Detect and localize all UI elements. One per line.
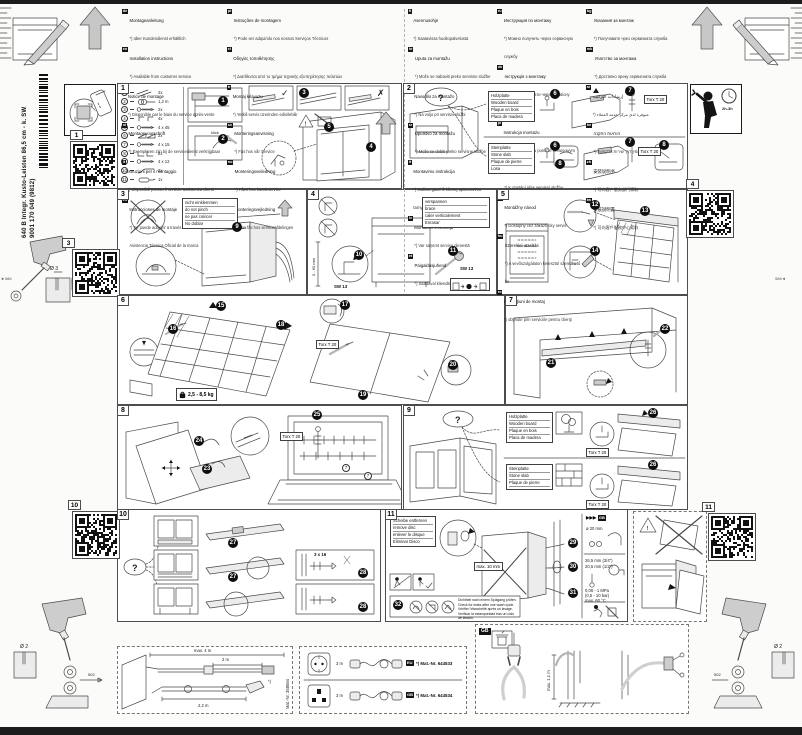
language-entry: ptInstruções de montagem*) Pode ser adqu… xyxy=(227,9,399,45)
language-title: Installation instructions xyxy=(130,56,173,61)
language-entry: itIstruzioni per il montaggio*) Disponib… xyxy=(122,160,224,196)
model-info: 640 B Integr. Kusto-Leisten 86,5 cm - k.… xyxy=(22,66,48,238)
step-badge: 2 xyxy=(218,134,228,144)
step-badge: 3 xyxy=(299,88,309,98)
step-badge: 28 xyxy=(358,568,368,578)
language-note: *) Kan fås hos serviceafdelingen xyxy=(235,225,294,230)
language-entry: mkУпатство за монтажа*) Достапно преку с… xyxy=(586,47,686,83)
language-entry: skMontážny návod*) Dostupný cez zákazníc… xyxy=(497,196,583,232)
step-badge: 18 xyxy=(276,320,286,330)
language-title: Montážny návod xyxy=(504,205,536,210)
hose-total-length: max. 4 m xyxy=(194,648,211,653)
language-note: *) Получавате чрез сервизната служба xyxy=(594,36,668,41)
svg-text:Ø 2: Ø 2 xyxy=(20,644,28,650)
language-title: Указания за монтаж xyxy=(594,18,634,23)
language-note: *) Može se nabaviti preko servisne služb… xyxy=(415,74,491,79)
step-badge: 21 xyxy=(546,358,556,368)
panel10-illustration: ? xyxy=(118,510,380,621)
language-note: *) Dostupný cez zákaznícky servis xyxy=(504,223,566,228)
language-note: *) 可向客戶服務中心索取 xyxy=(593,225,638,230)
language-title: Navodilo za montažo xyxy=(414,94,454,99)
step-panel-8: 8 24 23 25 Torx T 20 7 7 xyxy=(117,405,402,510)
step-badge: 30 xyxy=(568,562,578,572)
hose-low-length: 2,2 m xyxy=(198,703,208,708)
language-note: *) Достапно преку сервисната служба xyxy=(595,74,667,79)
step-badge: 29 xyxy=(568,538,578,548)
language-entry: slNavodilo za montažo*) Na voljo pri ser… xyxy=(408,85,492,121)
panel-number-2: 2 xyxy=(403,83,415,94)
torx-label: Torx T 20 xyxy=(586,500,609,509)
language-note: *) Na voljo pri servisni službi xyxy=(414,112,465,117)
qr-step-label-3: 3 xyxy=(62,238,75,248)
fitting-label: 26,5 mm (3/4") xyxy=(585,558,613,563)
step-badge: 17 xyxy=(340,300,350,310)
qr-code-10 xyxy=(72,511,120,559)
hose-kit-mat-nr: Mat.-Nr. 358584 xyxy=(285,679,290,709)
weight-icon xyxy=(179,390,186,399)
language-title: Instruções de montagem xyxy=(234,18,281,23)
language-code-badge: lv xyxy=(408,216,413,221)
language-entry: svMonteringsanvisning*) Fås hos vår Serv… xyxy=(227,122,399,158)
language-title: Istruzioni per il montaggio xyxy=(127,169,176,174)
language-code-badge: de xyxy=(122,9,128,14)
language-note: *) Fåes hos kundeservice xyxy=(235,187,281,192)
wood-label-box: HolzplatteWooden boardPlaque en boisPlac… xyxy=(506,412,553,443)
language-entry: tw安裝說明書*) 可向客戶服務中心索取 xyxy=(586,198,686,234)
step-panel-11: 11 Scheibe entfern xyxy=(385,509,628,622)
barcode xyxy=(39,72,48,168)
language-title: Paigaldusjuhend xyxy=(414,263,446,268)
language-column: bgУказания за монтаж*) Получавате чрез с… xyxy=(586,9,686,236)
language-title: Montagevoorschrift xyxy=(128,131,165,136)
step-badge: 5 xyxy=(324,122,334,132)
language-entry: fiAsennusohje*) Saatavissa huoltopalvelu… xyxy=(408,9,492,45)
language-code-badge: ro xyxy=(497,290,502,295)
language-entry: ruИнструкция по монтажу*) Можно получить… xyxy=(497,9,583,63)
language-title: Monteringsvejledning xyxy=(235,207,276,212)
step-badge: 13 xyxy=(640,206,650,216)
step-badge: 26 xyxy=(648,408,658,418)
step-badge: 12 xyxy=(590,200,600,210)
step-badge: 8 xyxy=(555,159,565,169)
language-entry: daMonteringsvejledning*) Kan fås hos ser… xyxy=(227,198,399,234)
step-badge: 7 xyxy=(625,137,635,147)
torx-label: Torx T 20 xyxy=(280,432,303,441)
bottom-trim-bar xyxy=(0,727,802,735)
language-note: *) Fås hos vår Service xyxy=(234,149,274,154)
leak-check-note: Dichtheit nach einem Spülgang prüfen.Che… xyxy=(458,598,518,621)
qr-step-label-11: 11 xyxy=(702,502,715,512)
panel-number-8: 8 xyxy=(117,405,129,416)
language-code-badge: sv xyxy=(227,123,233,128)
step-badge: 1 xyxy=(218,96,228,106)
language-entry: arإرشادات التركيب*) متوفرة لدى مركز خدمة… xyxy=(586,85,686,121)
language-note: *) متوفرة لدى مركز خدمة العملاء xyxy=(593,112,649,117)
language-entry: deMontageanleitung*) über Kundendienst e… xyxy=(122,9,224,45)
svg-text:Ø 2: Ø 2 xyxy=(774,644,782,650)
footnote-star: *) xyxy=(268,679,271,684)
step-badge: 22 xyxy=(660,324,670,334)
stone-label-box: SteinplatteStone slabPlaque de pierre xyxy=(506,464,553,490)
step-badge: 20 xyxy=(448,360,458,370)
language-entry: huSzerelési utasítás*) A vevőszolgálaton… xyxy=(497,234,583,288)
cord-illustration xyxy=(300,647,466,713)
language-code-badge: fi xyxy=(408,9,412,14)
pencil-marking-icon xyxy=(10,8,74,66)
sequence-pictogram xyxy=(450,278,490,291)
language-code-badge: hr xyxy=(408,47,413,52)
language-code-badge: zh xyxy=(586,160,592,165)
panel-number-1: 1 xyxy=(117,83,129,94)
brace-label-box: verspannenbracecaler verticalementEnrasa… xyxy=(422,197,490,228)
svg-text:?: ? xyxy=(455,415,461,425)
language-title: إرشادات التركيب xyxy=(593,94,623,99)
step-badge: 11 xyxy=(448,246,458,256)
language-note: *) obţinute prin serviciile pentru clien… xyxy=(504,317,572,322)
panel-number-6: 6 xyxy=(117,295,129,306)
fitting-label: 20,5 mm (1/2") xyxy=(585,564,613,569)
hose-mid-length: 2 m xyxy=(222,657,229,662)
step-panel-9: 9 ? HolzplatteWooden boardPlaque en bois… xyxy=(403,405,688,510)
language-code-badge: uk xyxy=(497,65,503,70)
step-badge: 31 xyxy=(568,588,578,598)
language-note: *) Može se dobiti preko servisne službe xyxy=(415,149,486,154)
language-column: ptInstruções de montagem*) Pode ser adqu… xyxy=(227,9,399,236)
step-badge: 7 xyxy=(625,86,635,96)
language-entry: bgУказания за монтаж*) Получавате чрез с… xyxy=(586,9,686,45)
step-badge: 23 xyxy=(202,464,212,474)
language-title: Montavimo instrukcija xyxy=(413,169,454,174)
language-note: *) A vevőszolgálaton keresztül szerezhet… xyxy=(505,261,581,284)
cord-length: 3 m xyxy=(336,693,343,698)
language-code-badge: lt xyxy=(408,160,412,165)
country-badge: EU xyxy=(406,660,414,666)
language-title: Szerelési utasítás xyxy=(505,243,539,248)
country-badge: GB xyxy=(406,692,414,698)
panel-number-3: 3 xyxy=(117,189,129,200)
language-title: Упатство за монтажа xyxy=(595,56,637,61)
language-title: Monteringsveiledning xyxy=(235,169,276,174)
qr-scan-phone-icon xyxy=(64,84,116,136)
language-code-badge: hu xyxy=(497,234,503,239)
step-badge: 26 xyxy=(648,460,658,470)
svg-text:2h-3h: 2h-3h xyxy=(722,106,733,111)
language-note: *) זמין דרך שירות הלקוחות xyxy=(594,149,639,154)
model-number: 640 B Integr. Kusto-Leisten 86,5 cm - k.… xyxy=(22,66,30,238)
step-badge: 24 xyxy=(194,436,204,446)
language-note: *) Можно получить через сервисную службу xyxy=(504,36,573,59)
language-note: *) über Kundendienst erhältlich xyxy=(130,36,186,41)
step-badge: 10 xyxy=(354,250,364,260)
step-badge: 4 xyxy=(366,142,376,152)
panel-number-5: 5 xyxy=(497,189,509,200)
language-code-badge: bg xyxy=(586,9,592,14)
language-code-badge: no xyxy=(227,160,233,165)
language-code-badge: mk xyxy=(586,47,593,52)
language-title: הוראות התקנה xyxy=(594,131,621,136)
drill-icon-bottom-right: Ø 2 502 xyxy=(712,594,800,722)
qr-step-label-4: 4 xyxy=(686,179,699,189)
decor-door-illustration: ! xyxy=(634,512,706,621)
fold-mark-left: ►586 xyxy=(1,277,12,281)
language-title: Asennusohje xyxy=(413,18,438,23)
language-title: Instrukcja montażu xyxy=(503,130,539,135)
language-code-badge: tr xyxy=(227,85,231,90)
language-code-badge: pt xyxy=(227,9,232,14)
remove-disc-label-box: Scheibe entfernenremove discenlever le d… xyxy=(390,516,436,547)
qr-code-11 xyxy=(708,513,756,561)
gb-reference: ▶▶▶ GB xyxy=(586,515,606,521)
language-code-badge: et xyxy=(408,254,413,259)
language-title: Інструкція з монтажу xyxy=(505,74,546,79)
panel-number-4: 4 xyxy=(307,189,319,200)
stone-label-box: SteinplatteStone slabPlaque de pierreLos… xyxy=(488,143,535,174)
arrow-glyphs: ▶▶▶ xyxy=(586,515,596,521)
gb-drain-height: max. 1,1 m xyxy=(546,670,551,691)
hose-diameter-label: ø 20 mm xyxy=(586,526,603,531)
language-note: *) Yetkili servis üzerinden edinilebilir xyxy=(233,112,298,117)
step-badge: 16 xyxy=(168,324,178,334)
qr-step-label-1: 1 xyxy=(70,130,83,140)
qr-code-4 xyxy=(686,190,734,238)
language-title: Notice de montage xyxy=(128,94,164,99)
wrench-size-label: SW 13 xyxy=(334,284,347,289)
installation-instruction-sheet: deMontageanleitung*) über Kundendienst e… xyxy=(0,0,802,735)
language-entry: frNotice de montage*) Disponible par le … xyxy=(122,85,224,121)
language-title: Uputstvo za montažu xyxy=(415,131,455,136)
language-title: Οδηγίες τοποθέτησης xyxy=(233,56,274,61)
step-badge: 6 xyxy=(550,89,560,99)
language-note: *) Disponibili presso il servizio assist… xyxy=(127,187,213,192)
language-title: Uputa za montažu xyxy=(415,56,450,61)
language-entry: heהוראות התקנה*) זמין דרך שירות הלקוחות xyxy=(586,122,686,158)
language-note: *) Disponible par le biais du service ap… xyxy=(128,112,215,117)
panel8-illustration xyxy=(118,406,401,509)
svg-text:502: 502 xyxy=(88,672,95,677)
language-note: *) Pode ser adquirido nos nossos Serviço… xyxy=(234,36,329,41)
language-code-badge: en xyxy=(122,47,128,52)
panel-number-9: 9 xyxy=(403,405,415,416)
door-weight-label: 2,5 - 8,5 kg xyxy=(176,388,217,401)
language-entry: srUputstvo za montažu*) Može se dobiti p… xyxy=(408,122,492,158)
step-badge: 27 xyxy=(228,572,238,582)
installation-time-icon: 2h-3h xyxy=(690,84,742,134)
svg-text:?: ? xyxy=(132,563,138,573)
cord-length: 3 m xyxy=(336,661,343,666)
wood-label-box: HolzplatteWooden boardPlaque en boisPlac… xyxy=(488,91,535,122)
part-ref-badge: 7 xyxy=(342,464,350,472)
order-number: 9001 170 049 (9812) xyxy=(30,66,38,238)
torx-label: Torx T 20 xyxy=(316,340,339,349)
no-pinch-label-box: nicht einklemmendo not pinchne pas coinc… xyxy=(182,198,238,229)
step-panel-6: 6 15 16 18 17 19 20 Torx T 20 xyxy=(117,295,505,405)
language-title: 安装说明书 xyxy=(593,169,614,174)
step-badge: 28 xyxy=(358,602,368,612)
language-note: *) Exemplaren zijn bij de servicedienst … xyxy=(128,149,220,154)
part-ref-badge: 7 xyxy=(364,472,372,480)
language-code-badge: nl xyxy=(122,123,127,128)
pencil-marking-icon-right xyxy=(728,8,792,66)
language-entry: zh安装说明书*) 可向客户服务部门索取 xyxy=(586,160,686,196)
step-badge: 9 xyxy=(232,222,242,232)
language-code-badge: sr xyxy=(408,123,413,128)
gb-badge: GB xyxy=(598,515,606,521)
decor-door-note: ! xyxy=(633,511,707,622)
step-badge: 15 xyxy=(216,301,226,311)
step-badge: 14 xyxy=(590,246,600,256)
language-title: Инструкция по монтажу xyxy=(504,18,551,23)
language-title: Montageanleitung xyxy=(130,18,164,23)
power-cord-variants: 3 m EU *) Mat.-Nr. 644533 3 m GB *) Mat.… xyxy=(299,646,467,714)
step-badge: 6 xyxy=(550,141,560,151)
screw-size-label: 3 x 16 xyxy=(314,552,326,557)
fold-mark-right: 586◄ xyxy=(775,277,786,281)
torx-label: Torx T 20 xyxy=(638,147,661,156)
temperature-label: max. 60 °C xyxy=(585,598,606,603)
torx-label: Torx T 20 xyxy=(644,95,667,104)
step-badge: 19 xyxy=(358,390,368,400)
language-note: *) K dostání přes servisní službu xyxy=(504,185,563,190)
step-badge: 8 xyxy=(659,140,669,150)
gb-illustration xyxy=(476,625,688,713)
gb-section: GB max. 1,1 m xyxy=(475,624,689,714)
language-note: *) Available from customer service xyxy=(130,74,192,79)
svg-text:Ø 3: Ø 3 xyxy=(50,266,58,272)
panel-number-10: 10 xyxy=(117,509,129,520)
panel-number-11: 11 xyxy=(385,509,397,520)
language-note: *) Var saņemt servisa dienestā xyxy=(414,243,469,248)
panel-number-7: 7 xyxy=(505,295,517,306)
language-title: Montaj kılavuzu xyxy=(233,94,263,99)
language-code-badge: el xyxy=(227,47,232,52)
language-title: Instrucciones de montaje xyxy=(129,207,177,212)
qr-code-3 xyxy=(72,249,120,297)
cord-mat-nr: *) Mat.-Nr. 644533 xyxy=(416,661,452,666)
language-code-badge: it xyxy=(122,160,126,165)
up-arrow-icon-left xyxy=(76,3,114,51)
language-note: *) 可向客户服务部门索取 xyxy=(593,187,638,192)
language-title: Monteringsanvisning xyxy=(234,131,273,136)
drill-icon-bottom-left: Ø 2 502 xyxy=(8,594,116,722)
language-code-badge: he xyxy=(586,123,592,128)
language-code-badge: ru xyxy=(497,9,502,14)
step-badge: 25 xyxy=(312,410,322,420)
step-badge: 27 xyxy=(228,538,238,548)
language-entry: enInstallation instructions*) Available … xyxy=(122,47,224,83)
cord-mat-nr: *) Mat.-Nr. 644534 xyxy=(416,693,452,698)
language-entry: nlMontagevoorschrift*) Exemplaren zijn b… xyxy=(122,122,224,158)
language-entry: hrUputa za montažu*) Može se nabaviti pr… xyxy=(408,47,492,83)
up-arrow-icon-right xyxy=(688,3,726,51)
max-bend-label: max. 10 mm xyxy=(474,562,503,571)
language-note: *) Διατίθενται από το τμήμα τεχνικής εξυ… xyxy=(233,74,342,79)
language-entry: trMontaj kılavuzu*) Yetkili servis üzeri… xyxy=(227,85,399,121)
step-badge: 32 xyxy=(393,600,403,610)
qr-step-label-10: 10 xyxy=(68,500,81,510)
svg-text:0 - 60 mm: 0 - 60 mm xyxy=(311,257,316,276)
svg-text:502: 502 xyxy=(714,672,721,677)
drain-hose-kit: max. 4 m 2 m 2,2 m *) Mat.-Nr. 358584 xyxy=(117,646,293,714)
top-trim-bar xyxy=(0,0,802,4)
torx-label: Torx T 20 xyxy=(586,448,609,457)
wrench-size-label: SW 13 xyxy=(460,266,473,271)
language-code-badge: ar xyxy=(586,85,591,90)
language-entry: elΟδηγίες τοποθέτησης*) Διατίθενται από … xyxy=(227,47,399,83)
step-panel-10: 10 ? 27 27 3 x 16 28 28 xyxy=(117,509,381,622)
qr-code-1 xyxy=(70,141,118,189)
language-note: *) Saatavissa huoltopalvelusta xyxy=(413,36,468,41)
